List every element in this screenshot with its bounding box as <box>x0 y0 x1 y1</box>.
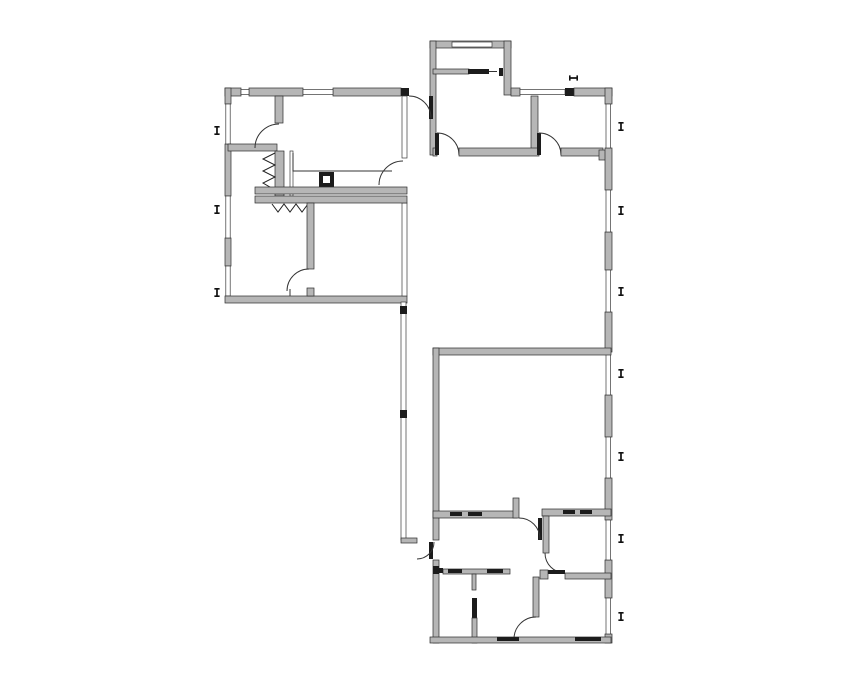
right-exterior-wall <box>605 88 612 643</box>
floor-plan-page: IIIIIIIIIII <box>0 0 855 678</box>
window-marker-right: I <box>617 610 624 624</box>
door-leaf <box>429 542 433 559</box>
window-segment <box>606 520 611 560</box>
break-line-zigzag <box>263 153 275 190</box>
window-segment <box>303 90 333 95</box>
door-swing-arc <box>409 96 431 118</box>
door-leaf <box>537 133 541 155</box>
window-segment <box>606 352 611 395</box>
window-segment <box>606 598 611 634</box>
interior-wall <box>307 203 314 269</box>
window-segment <box>241 90 249 95</box>
window-marker-right: I <box>617 532 624 546</box>
window-segment <box>606 437 611 478</box>
wall-jamb-block <box>400 306 407 314</box>
big-room-walls <box>433 348 611 643</box>
window-marker-left: I <box>213 124 220 138</box>
door-swing-arc <box>287 269 309 291</box>
interior-wall <box>275 96 283 123</box>
break-line-zigzag <box>272 204 308 212</box>
interior-wall <box>543 516 549 553</box>
window-segment <box>520 90 565 95</box>
window-marker-top: I <box>566 74 580 81</box>
window-marker-left: I <box>213 286 220 300</box>
window-marker-right: I <box>617 367 624 381</box>
wall-jamb-block <box>565 88 574 96</box>
door-swing-arc <box>437 133 459 155</box>
door-swing-arc <box>379 161 403 185</box>
window-segment <box>226 266 230 296</box>
corridor-wall-lower <box>255 196 407 203</box>
window-marker-right: I <box>617 120 624 134</box>
door-swing-arc <box>539 133 561 155</box>
floor-plan-canvas: IIIIIIIIIII <box>0 0 855 678</box>
wall-jamb-block <box>401 88 409 96</box>
counter-line <box>293 153 392 171</box>
window-segment <box>606 190 611 232</box>
corridor-wall-upper <box>255 187 407 194</box>
cluster-walls <box>430 498 611 643</box>
door-swing-arc <box>519 518 540 539</box>
upper-left-block-walls <box>225 88 409 303</box>
window-segment <box>452 42 492 47</box>
shelf-line <box>433 69 469 74</box>
window-segment <box>606 270 611 312</box>
interior-wall <box>531 96 538 155</box>
wall-stub <box>513 498 519 518</box>
shelf-dark-bar <box>468 69 489 74</box>
window-marker-right: I <box>617 204 624 218</box>
interior-wall <box>533 577 539 617</box>
window-segment <box>226 104 230 144</box>
hall-top-wall <box>433 133 611 160</box>
top-bump-walls <box>430 41 612 155</box>
interior-wall <box>228 144 277 151</box>
door-leaf <box>435 133 439 155</box>
column-core <box>323 176 330 183</box>
passage-door <box>409 96 433 119</box>
window-marker-left: I <box>213 203 220 217</box>
corridor-walls <box>400 302 434 559</box>
window-marker-right: I <box>617 450 624 464</box>
wall-jamb-block <box>400 410 407 418</box>
window-marker-right: I <box>617 285 624 299</box>
window-segment <box>606 104 611 148</box>
window-segment <box>226 196 230 238</box>
door-swing-arc <box>514 617 536 639</box>
